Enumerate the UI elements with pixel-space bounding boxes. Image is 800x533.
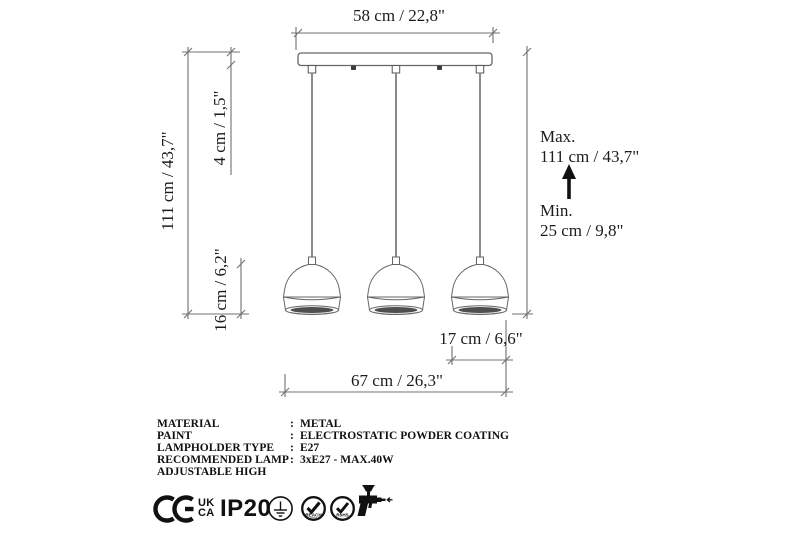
min-height-label: Min. (540, 201, 573, 221)
product-dimension-sheet: 58 cm / 22,8" 111 cm / 43,7" 4 cm / 1,5"… (0, 0, 800, 533)
dimension-shade-width: 17 cm / 6,6" (439, 329, 522, 349)
cord-grip (392, 66, 400, 74)
dimension-shade-height: 16 cm / 6,2" (211, 248, 231, 331)
spec-colon: : (290, 418, 300, 430)
spec-label: RECOMMENDED LAMP (157, 454, 290, 466)
max-height-label: Max. (540, 127, 575, 147)
dimension-total-height: 111 cm / 43,7" (158, 131, 178, 230)
reach-label: REACH (305, 512, 322, 517)
rail-screw (437, 66, 442, 71)
pendant-shade-middle (368, 257, 425, 315)
spec-label: MATERIAL (157, 418, 290, 430)
spec-value: 3xE27 - MAX.40W (300, 454, 577, 466)
rail-screw (351, 66, 356, 71)
ceiling-rail (298, 53, 492, 73)
spec-row-recommended-lamp: RECOMMENDED LAMP : 3xE27 - MAX.40W (157, 454, 577, 466)
spec-value (300, 466, 577, 478)
dimension-rail-width: 58 cm / 22,8" (353, 6, 445, 26)
spec-row-lampholder: LAMPHOLDER TYPE : E27 (157, 442, 577, 454)
spec-label: PAINT (157, 430, 290, 442)
spec-value: ELECTROSTATIC POWDER COATING (300, 430, 577, 442)
spec-colon: : (290, 454, 300, 466)
ukca-line2: CA (198, 509, 215, 519)
spec-row-adjustable-high: ADJUSTABLE HIGH (157, 466, 577, 478)
cord-grip (476, 66, 484, 74)
spec-label: LAMPHOLDER TYPE (157, 442, 290, 454)
pendant-shade-right (452, 257, 509, 315)
dimension-span-width: 67 cm / 26,3" (351, 371, 443, 391)
spec-table: MATERIAL : METAL PAINT : ELECTROSTATIC P… (157, 418, 577, 478)
spec-value: E27 (300, 442, 577, 454)
spec-colon (290, 466, 300, 478)
spec-colon: : (290, 442, 300, 454)
cord-grip (308, 66, 316, 74)
spec-label: ADJUSTABLE HIGH (157, 466, 290, 478)
min-height-value: 25 cm / 9,8" (540, 221, 623, 241)
dimension-canopy-height: 4 cm / 1,5" (210, 91, 230, 166)
ukca-mark: UK CA (198, 499, 215, 518)
max-height-value: 111 cm / 43,7" (540, 147, 639, 167)
rohs-label: RoHS (336, 512, 349, 517)
ip-rating: IP20 (220, 497, 271, 521)
spec-colon: : (290, 430, 300, 442)
spec-row-material: MATERIAL : METAL (157, 418, 577, 430)
spec-row-paint: PAINT : ELECTROSTATIC POWDER COATING (157, 430, 577, 442)
pendant-shade-left (284, 257, 341, 315)
spec-value: METAL (300, 418, 577, 430)
suspension-cords (312, 73, 480, 258)
adjustable-height-arrow-icon (562, 164, 576, 199)
